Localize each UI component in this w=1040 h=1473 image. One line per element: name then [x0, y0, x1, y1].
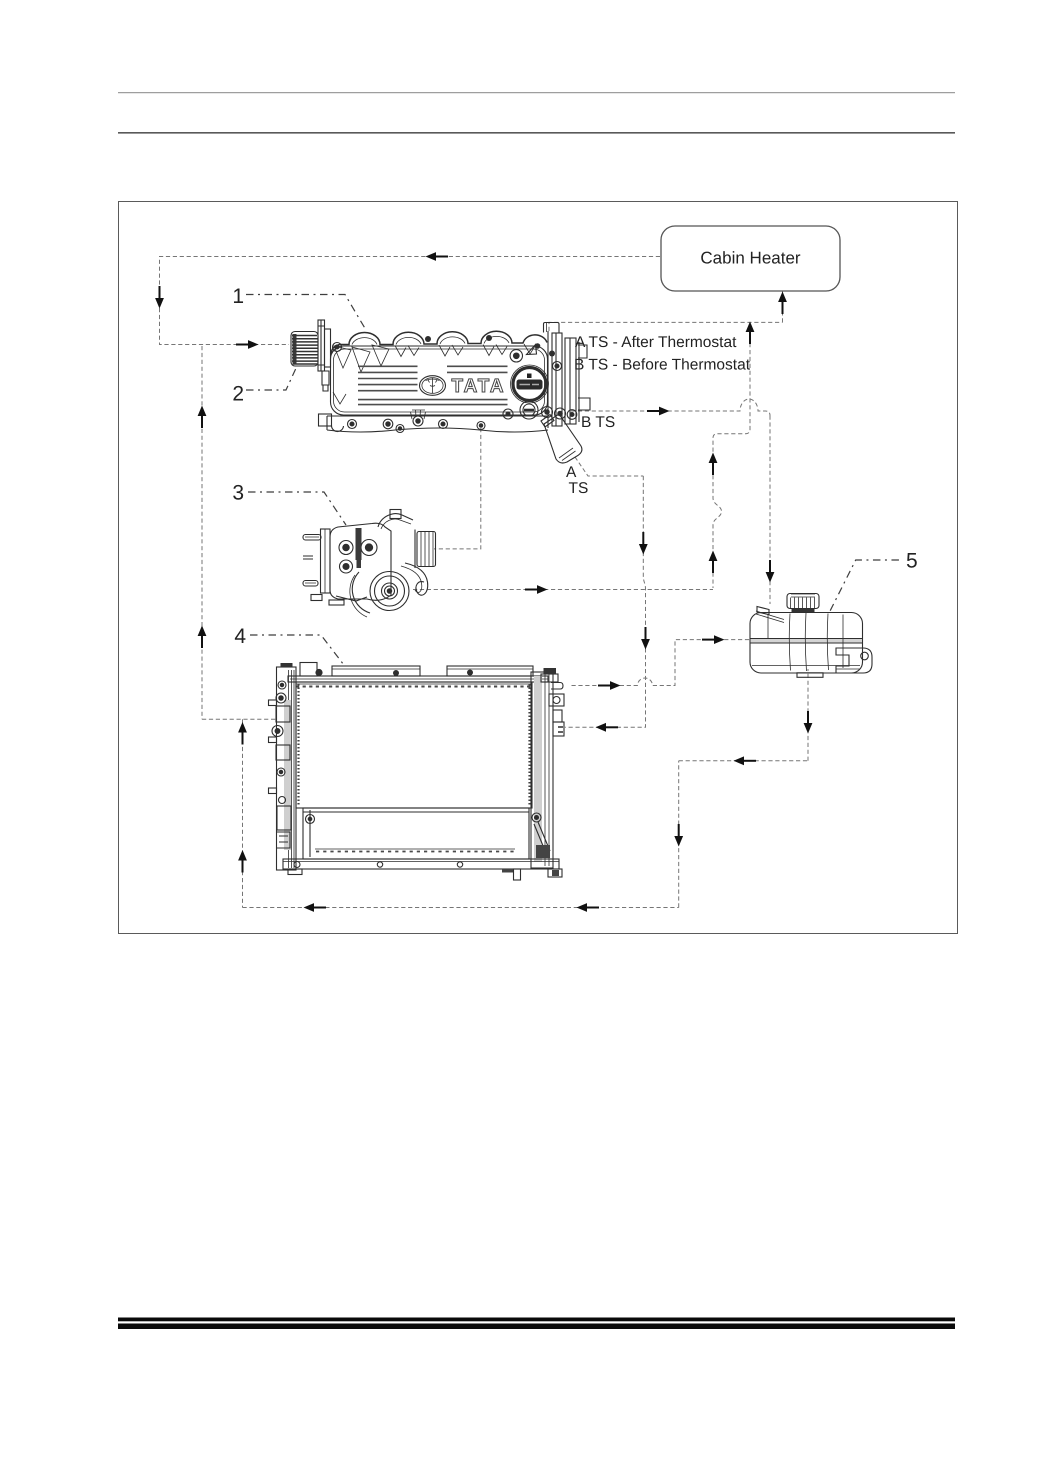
- svg-text:A TS - After Thermostat: A TS - After Thermostat: [575, 334, 737, 351]
- svg-text:B TS - Before Thermostat: B TS - Before Thermostat: [574, 357, 751, 374]
- svg-text:3: 3: [232, 482, 244, 505]
- svg-text:A: A: [566, 464, 577, 481]
- svg-text:B TS: B TS: [581, 414, 615, 431]
- svg-text:4: 4: [234, 625, 246, 648]
- svg-text:1: 1: [232, 285, 244, 308]
- svg-text:TS: TS: [569, 480, 589, 497]
- svg-text:2: 2: [232, 383, 244, 406]
- svg-text:5: 5: [906, 550, 918, 573]
- svg-text:Cabin Heater: Cabin Heater: [700, 249, 801, 268]
- svg-text:TATA: TATA: [452, 376, 506, 397]
